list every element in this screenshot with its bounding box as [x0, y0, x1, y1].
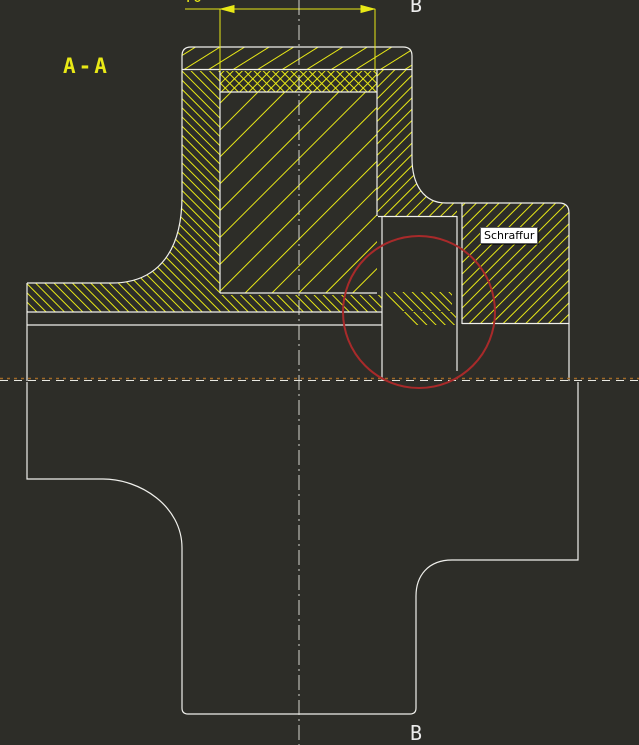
hatch-top-cap [182, 47, 412, 69]
section-label: A-A [63, 56, 110, 77]
section-plane-line [0, 379, 639, 381]
dimension-value-text: 40 [182, 0, 204, 5]
section-marker-top: B [410, 0, 422, 15]
hatch-right-wall [377, 69, 457, 216]
dimension-arrow-left [221, 6, 234, 13]
section-drawing [0, 0, 639, 745]
section-marker-bottom: B [410, 723, 422, 743]
dimension-arrow-right [361, 6, 374, 13]
schraffur-tooltip: Schraffur [480, 227, 538, 244]
cad-viewport[interactable]: A-A 40 B B Schraffur [0, 0, 639, 745]
hatch-error-patch-upper [385, 292, 452, 311]
hatch-error-patch-lower [399, 312, 456, 325]
lower-outer-profile [27, 382, 578, 714]
